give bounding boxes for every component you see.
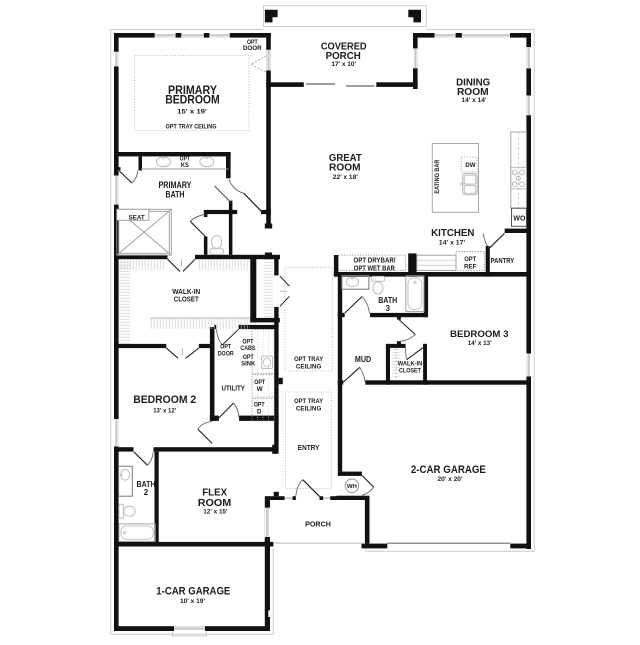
svg-text:14' x 14': 14' x 14' (461, 97, 487, 104)
svg-text:ROOM: ROOM (198, 498, 232, 509)
svg-text:CABS: CABS (240, 345, 255, 352)
svg-text:WH: WH (347, 484, 357, 490)
svg-text:2: 2 (144, 488, 149, 497)
svg-text:OPT: OPT (464, 256, 476, 263)
svg-text:13' x 12': 13' x 12' (153, 407, 176, 414)
svg-text:OPT DRYBAR/: OPT DRYBAR/ (354, 257, 396, 264)
svg-text:ENTRY: ENTRY (298, 443, 320, 452)
svg-text:DW: DW (465, 162, 475, 169)
svg-text:1-CAR GARAGE: 1-CAR GARAGE (156, 586, 230, 598)
svg-text:WALK-IN: WALK-IN (398, 360, 423, 367)
svg-text:W: W (257, 386, 263, 393)
svg-text:CLOSET: CLOSET (174, 294, 199, 303)
svg-text:DOOR: DOOR (243, 45, 262, 52)
svg-text:12' x 15': 12' x 15' (203, 509, 228, 516)
svg-text:PANTRY: PANTRY (491, 258, 515, 265)
svg-text:14' x 17': 14' x 17' (439, 239, 466, 246)
svg-text:WO: WO (513, 216, 526, 223)
svg-text:OPT TRAY: OPT TRAY (294, 398, 323, 405)
svg-text:20' x 20': 20' x 20' (438, 476, 463, 483)
svg-text:DOOR: DOOR (218, 350, 234, 357)
svg-text:BEDROOM: BEDROOM (165, 93, 220, 107)
svg-text:D: D (257, 408, 262, 415)
svg-text:BEDROOM 3: BEDROOM 3 (450, 329, 509, 340)
svg-text:SEAT: SEAT (129, 214, 145, 221)
svg-text:KS: KS (181, 162, 189, 169)
svg-text:CEILING: CEILING (296, 363, 322, 370)
svg-text:ROOM: ROOM (329, 163, 361, 174)
svg-text:CEILING: CEILING (296, 405, 322, 412)
svg-text:CLOSET: CLOSET (399, 367, 421, 374)
svg-text:17' x 10': 17' x 10' (331, 61, 356, 68)
svg-text:UTILITY: UTILITY (222, 383, 246, 392)
svg-text:2-CAR GARAGE: 2-CAR GARAGE (411, 464, 486, 476)
svg-text:OPT TRAY CEILING: OPT TRAY CEILING (166, 124, 217, 131)
svg-text:EATING BAR: EATING BAR (434, 159, 441, 193)
svg-text:10' x 19': 10' x 19' (180, 598, 205, 605)
svg-text:BEDROOM 2: BEDROOM 2 (133, 394, 196, 406)
svg-text:15' x 19': 15' x 19' (177, 109, 207, 116)
svg-text:REF: REF (464, 263, 477, 270)
svg-text:14' x 13': 14' x 13' (468, 340, 492, 347)
svg-text:FLEX: FLEX (202, 488, 227, 499)
svg-text:OPT TRAY: OPT TRAY (294, 356, 323, 363)
svg-text:PORCH: PORCH (305, 520, 331, 529)
svg-text:OPT WET BAR: OPT WET BAR (354, 266, 395, 273)
svg-text:KITCHEN: KITCHEN (431, 228, 474, 239)
svg-text:SINK: SINK (241, 361, 255, 368)
svg-text:MUD: MUD (355, 355, 372, 364)
svg-text:BATH: BATH (166, 190, 185, 201)
svg-text:22' x 18': 22' x 18' (333, 174, 359, 181)
svg-text:3: 3 (385, 304, 390, 313)
